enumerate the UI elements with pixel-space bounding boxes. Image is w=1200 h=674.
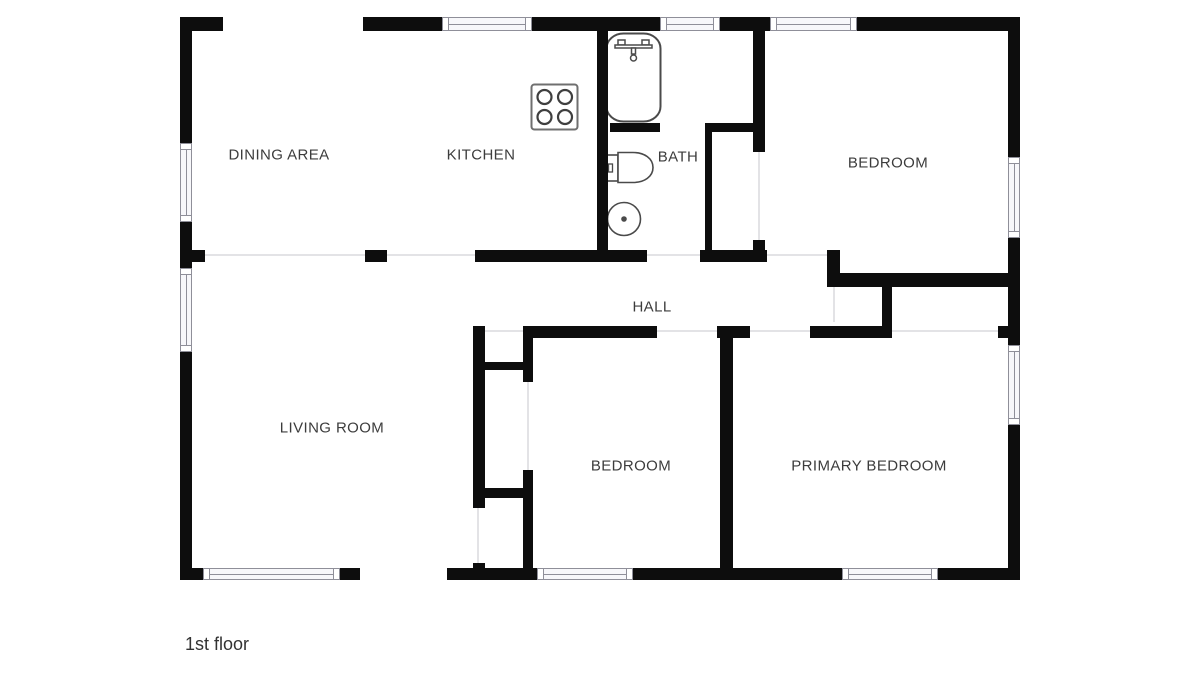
door-opening <box>892 330 998 332</box>
room-label-primary-bedroom: PRIMARY BEDROOM <box>791 458 946 475</box>
wall-segment <box>597 31 608 250</box>
wall-segment <box>447 568 537 580</box>
wall-segment <box>705 123 712 262</box>
door-opening <box>767 254 827 256</box>
wall-segment <box>180 17 192 143</box>
window <box>180 143 192 222</box>
wall-segment <box>753 31 765 152</box>
wall-segment <box>473 326 485 508</box>
door-opening <box>833 287 835 322</box>
wall-segment <box>180 568 203 580</box>
window <box>203 568 340 580</box>
window <box>660 17 720 31</box>
room-label-dining-area: DINING AREA <box>228 147 329 164</box>
wall-segment <box>363 17 442 31</box>
floor-plan: DINING AREA KITCHEN BATH BEDROOM HALL LI… <box>0 0 1200 674</box>
room-label-bath: BATH <box>658 149 699 166</box>
window <box>537 568 633 580</box>
wall-segment <box>832 273 1020 287</box>
wall-segment <box>998 326 1020 338</box>
door-opening <box>527 382 529 470</box>
stove-icon <box>530 83 579 136</box>
wall-segment <box>633 568 842 580</box>
wall-segment <box>720 326 733 580</box>
door-opening <box>647 254 700 256</box>
door-opening <box>657 330 717 332</box>
door-opening <box>387 254 475 256</box>
window <box>1008 157 1020 238</box>
window <box>442 17 532 31</box>
door-opening <box>205 254 365 256</box>
bathtub-icon <box>605 32 662 128</box>
toilet-icon <box>604 151 656 190</box>
wall-segment <box>720 17 770 31</box>
wall-segment <box>857 17 1020 31</box>
wall-segment <box>180 222 192 268</box>
wall-segment <box>610 123 660 132</box>
wall-segment <box>365 250 387 262</box>
wall-segment <box>475 250 647 262</box>
window <box>842 568 938 580</box>
wall-segment <box>1008 425 1020 580</box>
wall-segment <box>192 250 205 262</box>
room-label-living-room: LIVING ROOM <box>280 420 384 437</box>
door-opening <box>758 152 760 240</box>
wall-segment <box>473 362 533 370</box>
window <box>1008 345 1020 425</box>
room-label-bedroom-top: BEDROOM <box>848 155 928 172</box>
door-opening <box>750 330 810 332</box>
wall-segment <box>532 17 660 31</box>
wall-segment <box>523 470 533 580</box>
wall-segment <box>810 326 892 338</box>
wall-segment <box>938 568 1020 580</box>
wall-segment <box>180 352 192 580</box>
door-opening <box>477 508 479 563</box>
window <box>770 17 857 31</box>
window <box>180 268 192 352</box>
wall-segment <box>340 568 360 580</box>
wall-segment <box>523 326 533 382</box>
room-label-kitchen: KITCHEN <box>447 147 516 164</box>
floor-title: 1st floor <box>185 634 249 655</box>
room-label-hall: HALL <box>632 299 671 316</box>
room-label-bedroom-bottom: BEDROOM <box>591 458 671 475</box>
wall-segment <box>1008 17 1020 157</box>
wall-segment <box>523 326 657 338</box>
wall-segment <box>753 240 765 262</box>
wall-segment <box>473 488 533 498</box>
door-opening <box>485 330 523 332</box>
